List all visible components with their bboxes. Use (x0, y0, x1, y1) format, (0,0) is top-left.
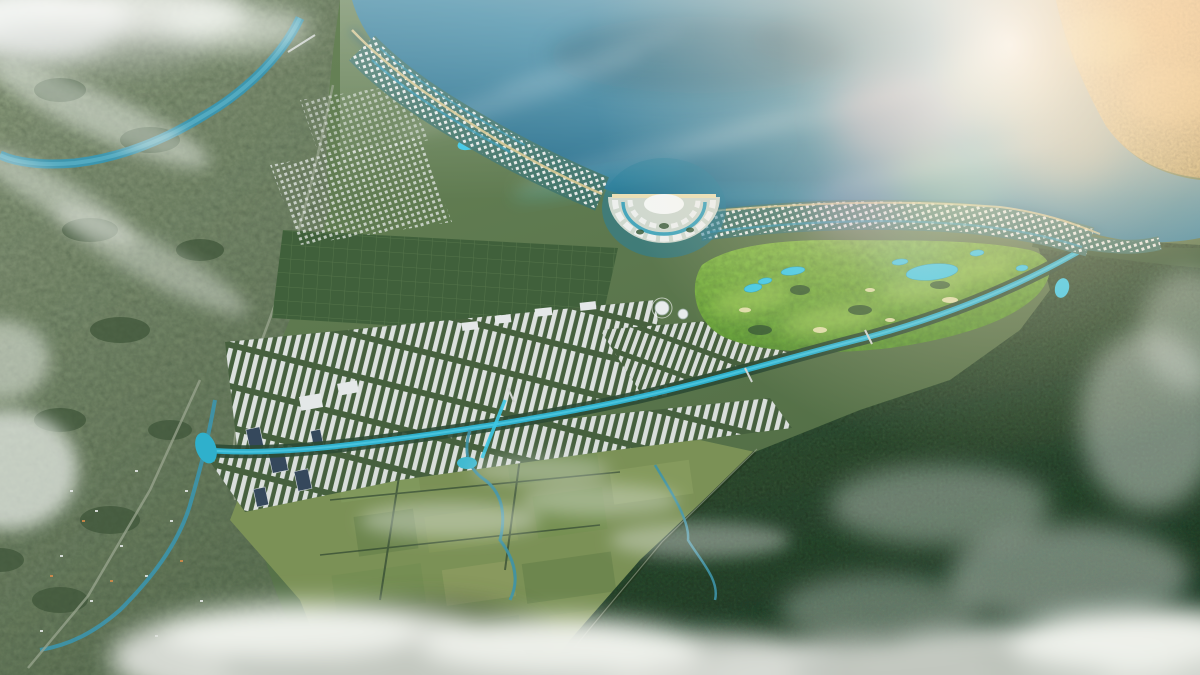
aerial-render-image (0, 0, 1200, 675)
render-scene (0, 0, 1200, 675)
screenshot-canvas (0, 0, 1200, 675)
